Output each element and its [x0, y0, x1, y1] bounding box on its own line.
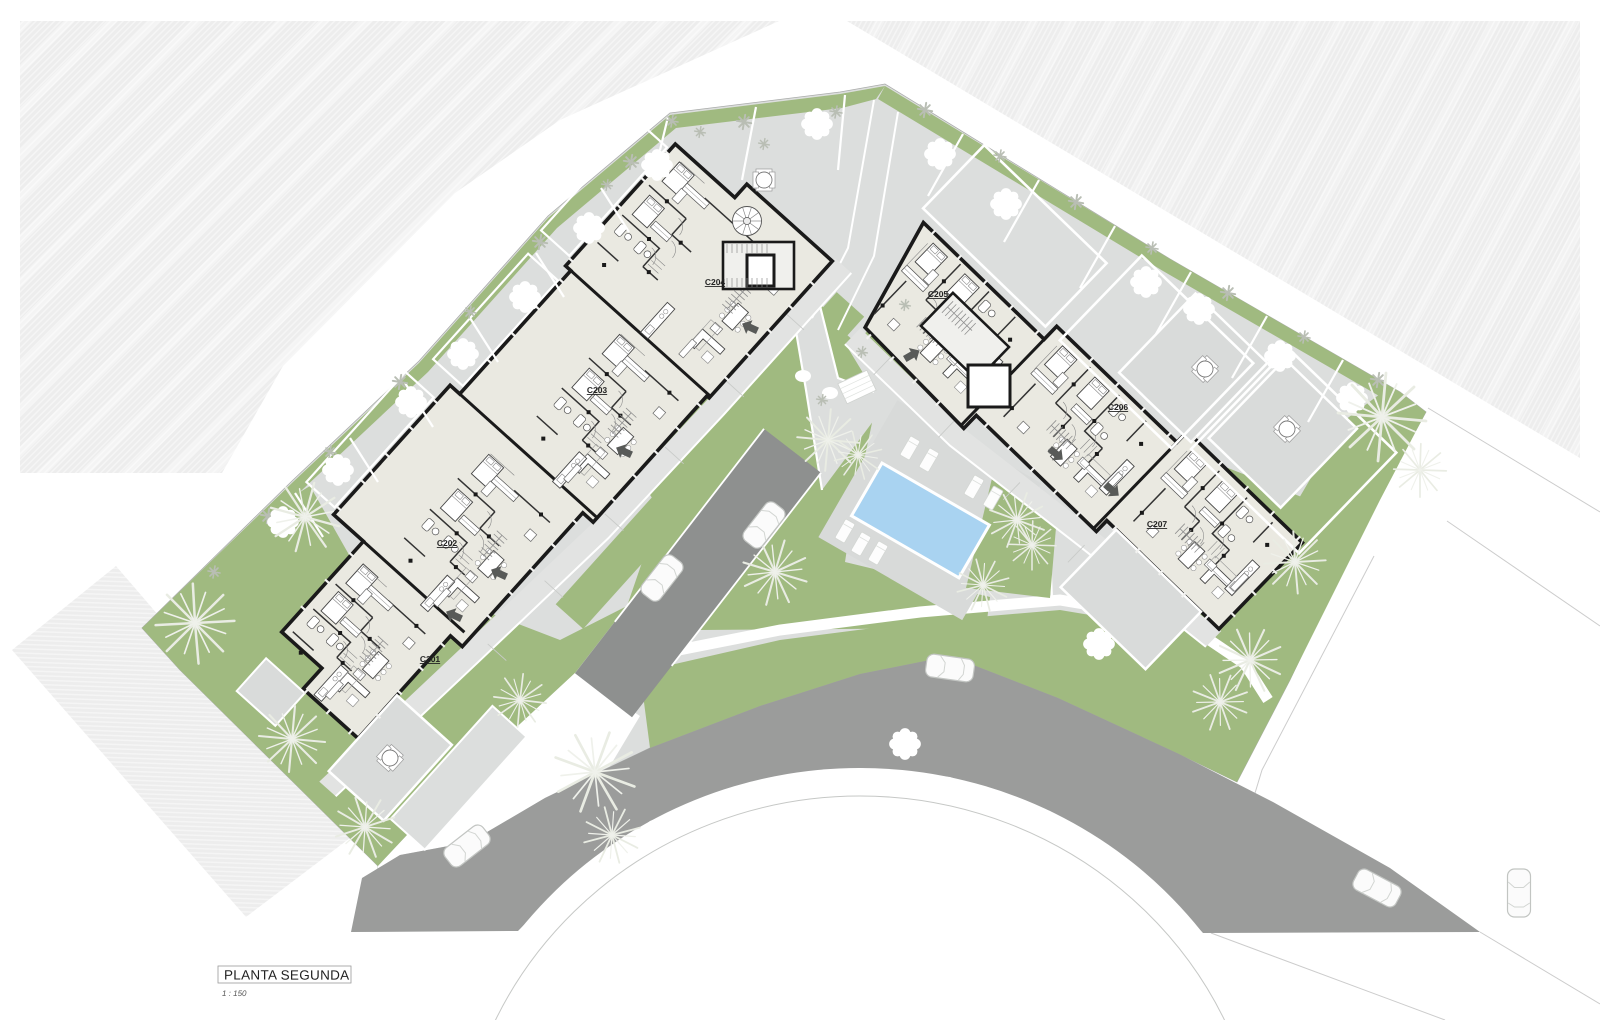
- svg-text:C206: C206: [1108, 402, 1129, 412]
- svg-text:PLANTA SEGUNDA: PLANTA SEGUNDA: [224, 968, 350, 983]
- svg-text:C205: C205: [928, 289, 949, 299]
- svg-text:C202: C202: [437, 538, 458, 548]
- svg-text:C207: C207: [1147, 519, 1168, 529]
- svg-text:1 : 150: 1 : 150: [222, 989, 247, 998]
- svg-text:C201: C201: [420, 654, 441, 664]
- svg-text:C204: C204: [705, 277, 726, 287]
- svg-text:C203: C203: [587, 385, 608, 395]
